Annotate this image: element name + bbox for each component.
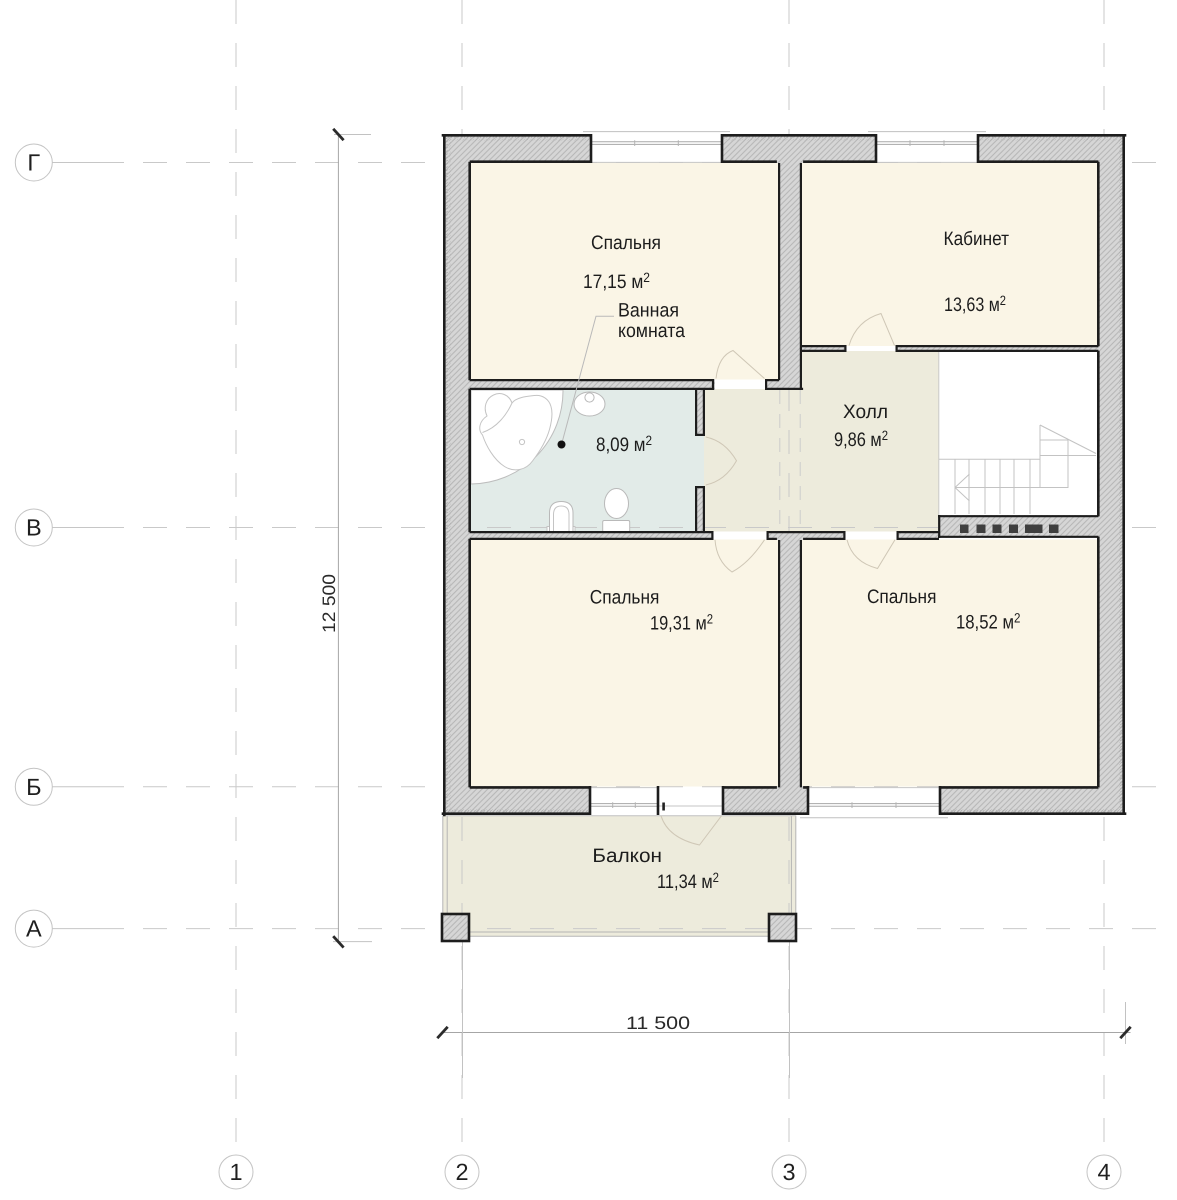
svg-text:Спальня: Спальня [591, 232, 661, 254]
svg-text:11,34 м2: 11,34 м2 [657, 870, 719, 893]
svg-text:9,86 м2: 9,86 м2 [834, 428, 888, 451]
svg-text:18,52 м2: 18,52 м2 [956, 611, 1021, 634]
svg-text:2: 2 [455, 1159, 468, 1185]
svg-text:Б: Б [26, 774, 41, 800]
svg-text:4: 4 [1097, 1159, 1110, 1185]
svg-text:Кабинет: Кабинет [944, 228, 1010, 250]
svg-text:комната: комната [618, 320, 685, 342]
svg-text:3: 3 [782, 1159, 795, 1185]
svg-text:19,31 м2: 19,31 м2 [650, 612, 713, 635]
svg-text:Балкон: Балкон [592, 845, 662, 867]
svg-text:А: А [26, 916, 42, 942]
svg-text:Спальня: Спальня [590, 586, 660, 608]
svg-text:12 500: 12 500 [319, 574, 339, 633]
svg-text:Г: Г [27, 150, 40, 176]
svg-text:Спальня: Спальня [867, 586, 937, 608]
svg-text:17,15 м2: 17,15 м2 [583, 270, 650, 293]
svg-text:1: 1 [229, 1159, 242, 1185]
svg-text:Холл: Холл [843, 401, 888, 423]
svg-text:8,09 м2: 8,09 м2 [596, 433, 652, 456]
svg-text:Ванная: Ванная [618, 299, 679, 321]
svg-text:В: В [26, 515, 42, 541]
svg-text:13,63 м2: 13,63 м2 [944, 293, 1006, 316]
svg-text:11 500: 11 500 [626, 1013, 690, 1033]
